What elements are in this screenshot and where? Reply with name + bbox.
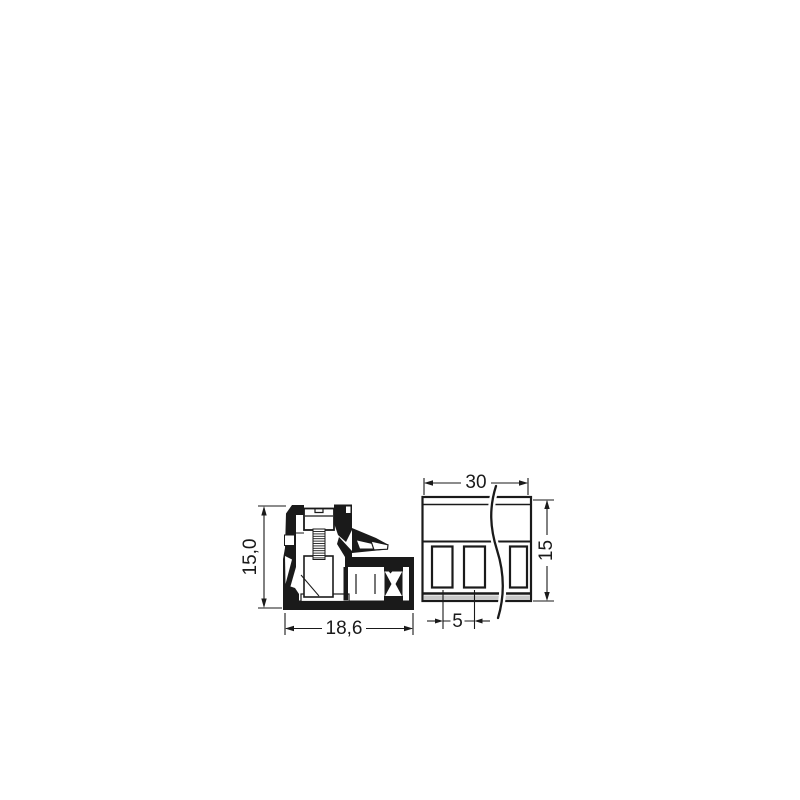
dimension-label-pitch: 5 [452, 611, 463, 632]
arrowhead-up [261, 506, 266, 516]
clamp-lever-tip [371, 541, 388, 550]
contact-spool-right [396, 571, 403, 597]
arrowhead-up [544, 500, 549, 509]
barrel-right-edge [409, 557, 414, 610]
arrowhead-down [544, 592, 549, 601]
dimension-label-front-height: 15 [536, 540, 557, 561]
arrowhead-down [261, 599, 266, 609]
front-view: 30 15 5 [423, 472, 558, 632]
dimension-label-height: 15,0 [240, 539, 261, 576]
contact-spool-left [385, 571, 392, 597]
dimension-side-width: 18,6 [285, 613, 413, 639]
barrel-top-band [345, 557, 414, 567]
dimension-side-height: 15,0 [240, 506, 286, 608]
terminal-opening-3 [510, 547, 527, 588]
front-bottom-shade-band [424, 596, 531, 601]
technical-drawing-canvas: 15,0 18,6 [0, 0, 800, 800]
body-top-band-left [292, 505, 304, 515]
contact-spool-top [384, 567, 403, 572]
arrowhead-left [424, 480, 433, 485]
dimension-front-width: 30 [424, 472, 528, 495]
dimension-label-width: 18,6 [326, 618, 363, 639]
arrowhead-right [519, 480, 528, 485]
terminal-opening-2 [464, 547, 485, 588]
screw-head [304, 509, 334, 531]
wire-clamp-frame [304, 556, 333, 597]
body-top-notch [346, 506, 352, 514]
arrowhead-right [404, 626, 413, 631]
arrowhead-left [285, 626, 294, 631]
arrowhead-left [435, 619, 443, 624]
dimension-label-front-width: 30 [465, 472, 486, 493]
body-shoulder [334, 515, 352, 542]
barrel-left-wall [344, 567, 349, 601]
side-view: 15,0 18,6 [240, 505, 414, 640]
dimension-front-height: 15 [533, 500, 557, 601]
left-wall-notch [285, 535, 295, 546]
contact-spool-bottom [384, 596, 403, 601]
drawing-page: 15,0 18,6 [0, 0, 800, 800]
arrowhead-right [475, 619, 483, 624]
terminal-opening-1 [432, 547, 453, 588]
